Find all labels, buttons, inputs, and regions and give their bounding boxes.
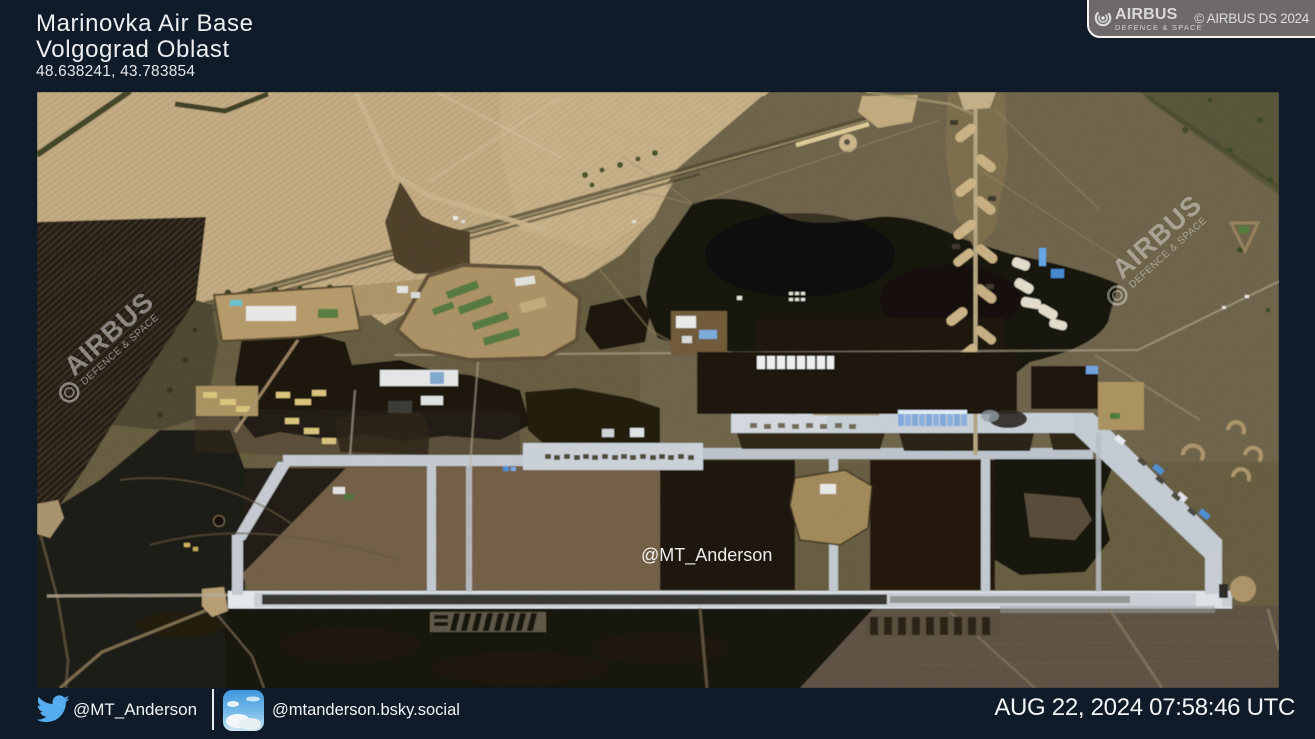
- svg-text:@MT_Anderson: @MT_Anderson: [641, 545, 772, 566]
